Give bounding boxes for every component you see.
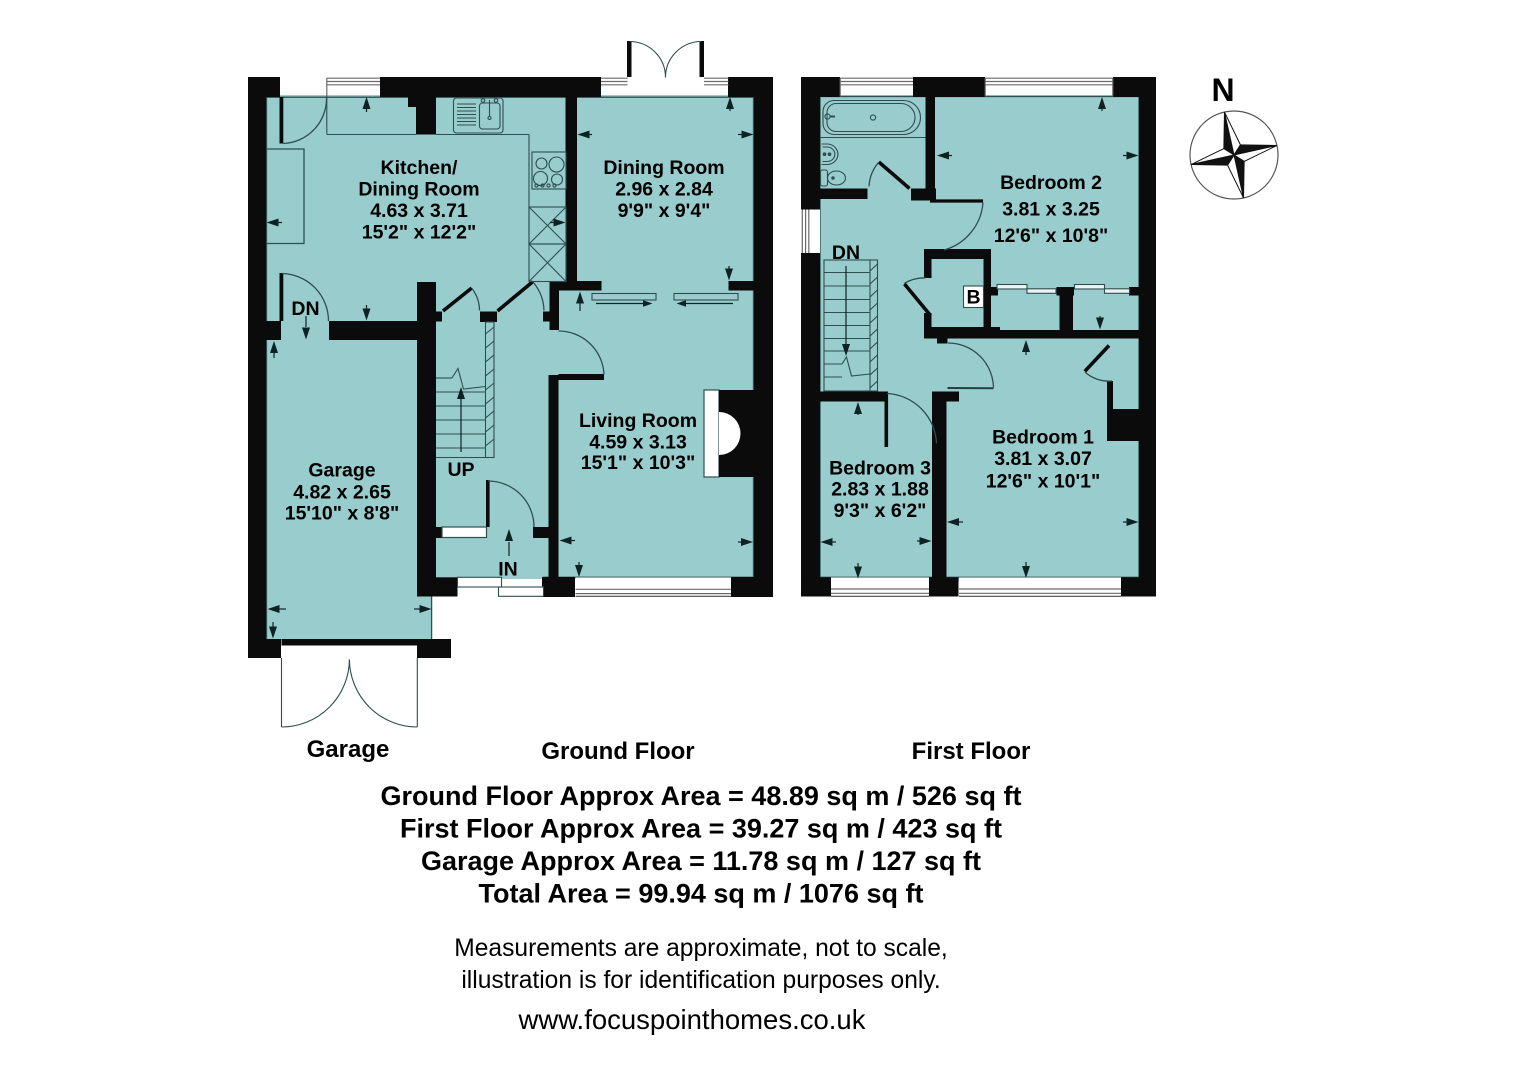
svg-text:UP: UP: [447, 459, 474, 481]
svg-text:DN: DN: [291, 298, 319, 320]
svg-text:IN: IN: [498, 559, 518, 581]
svg-text:Bedroom 1: Bedroom 1: [992, 427, 1094, 449]
svg-text:DN: DN: [832, 242, 860, 264]
svg-text:15'10" x 8'8": 15'10" x 8'8": [285, 503, 400, 525]
svg-text:Garage Approx Area = 11.78 sq: Garage Approx Area = 11.78 sq m / 127 sq…: [421, 846, 981, 876]
svg-text:B: B: [966, 287, 980, 309]
svg-text:Ground Floor: Ground Floor: [541, 738, 694, 765]
svg-text:First Floor: First Floor: [912, 738, 1031, 765]
svg-text:15'2" x 12'2": 15'2" x 12'2": [362, 222, 477, 244]
svg-text:Garage: Garage: [307, 736, 390, 763]
svg-text:12'6" x 10'1": 12'6" x 10'1": [986, 471, 1101, 493]
svg-text:4.82 x 2.65: 4.82 x 2.65: [293, 482, 391, 504]
svg-text:2.83 x 1.88: 2.83 x 1.88: [831, 479, 929, 501]
svg-text:Bedroom 2: Bedroom 2: [1000, 172, 1102, 194]
svg-text:Total Area = 99.94 sq m / 1076: Total Area = 99.94 sq m / 1076 sq ft: [479, 879, 924, 909]
svg-text:illustration is for identifica: illustration is for identification purpo…: [461, 967, 940, 994]
svg-text:Bedroom 3: Bedroom 3: [829, 458, 931, 480]
svg-text:9'3" x 6'2": 9'3" x 6'2": [834, 500, 927, 522]
svg-text:15'1" x 10'3": 15'1" x 10'3": [581, 452, 696, 474]
svg-text:4.63 x 3.71: 4.63 x 3.71: [370, 200, 468, 222]
svg-text:www.focuspointhomes.co.uk: www.focuspointhomes.co.uk: [518, 1004, 866, 1035]
svg-text:N: N: [1211, 72, 1234, 108]
svg-text:Measurements are approximate,: Measurements are approximate, not to sca…: [454, 935, 947, 962]
svg-text:Dining Room: Dining Room: [603, 157, 724, 179]
svg-text:2.96 x 2.84: 2.96 x 2.84: [615, 179, 713, 201]
svg-text:3.81 x 3.07: 3.81 x 3.07: [994, 448, 1092, 470]
svg-text:4.59 x 3.13: 4.59 x 3.13: [589, 432, 687, 454]
svg-text:3.81 x 3.25: 3.81 x 3.25: [1002, 199, 1100, 221]
svg-text:Ground Floor Approx Area = 48.: Ground Floor Approx Area = 48.89 sq m / …: [381, 781, 1022, 811]
svg-text:12'6" x 10'8": 12'6" x 10'8": [994, 225, 1109, 247]
svg-text:9'9" x 9'4": 9'9" x 9'4": [618, 200, 711, 222]
svg-text:Living Room: Living Room: [579, 410, 697, 432]
svg-text:Dining Room: Dining Room: [358, 179, 479, 201]
svg-text:Garage: Garage: [308, 460, 375, 482]
svg-text:Kitchen/: Kitchen/: [381, 157, 459, 179]
svg-text:First Floor Approx Area = 39.2: First Floor Approx Area = 39.27 sq m / 4…: [400, 814, 1002, 844]
